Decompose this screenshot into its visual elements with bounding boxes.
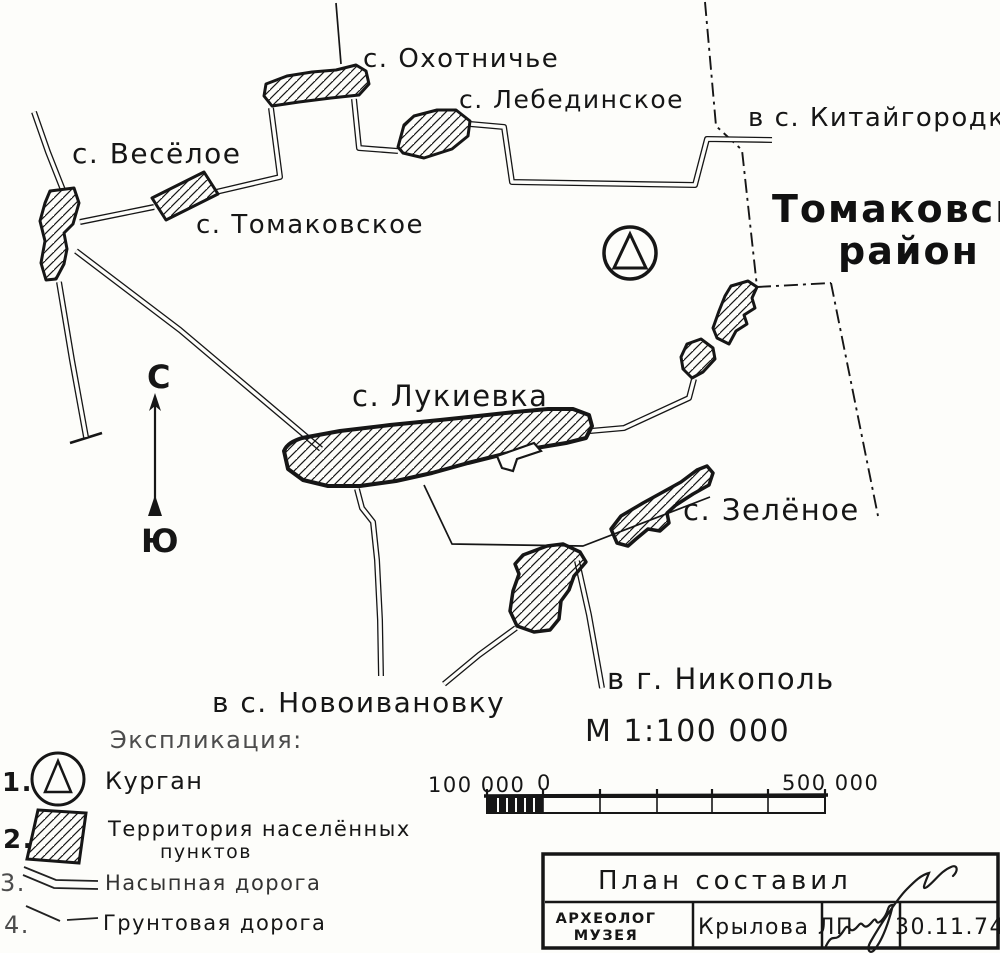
label-novoivanovka: в с. Новоивановку	[212, 686, 505, 719]
title-block: План составил АРХЕОЛОГ МУЗЕЯ Крылова ЛП …	[543, 854, 1000, 952]
label-scale-text: М 1:100 000	[585, 714, 790, 749]
label-tomakovskoye: с. Томаковское	[196, 210, 424, 240]
label-zelyonoye: с. Зелёное	[683, 493, 860, 527]
legend-label-1: Курган	[105, 767, 203, 795]
scale-zero-label: 0	[537, 771, 552, 795]
label-vesyoloye: с. Весёлое	[72, 137, 242, 170]
settlement-northeast-large	[713, 281, 757, 344]
title-block-name: Крылова ЛП	[698, 915, 854, 940]
label-region-line1: Томаковский	[772, 187, 1000, 231]
legend-label-2a: Территория населённых	[107, 817, 411, 841]
legend-item-dirt-road: 4. Грунтовая дорога	[4, 906, 326, 939]
title-block-role-1: АРХЕОЛОГ	[556, 911, 657, 927]
settlement-vesyoloye	[40, 188, 79, 280]
label-lukievka: с. Лукиевка	[352, 379, 548, 413]
scale-left-label: 100 000	[428, 773, 525, 797]
settlement-lebedinskoye	[398, 110, 470, 158]
label-kitaygorodka: в с. Китайгородку	[748, 103, 1000, 133]
compass-south-label: Ю	[141, 522, 180, 560]
label-nikopol: в г. Никополь	[607, 662, 835, 696]
settlement-northeast-small	[681, 339, 715, 378]
compass: С Ю	[141, 358, 180, 560]
title-block-date: 30.11.74	[895, 915, 1000, 940]
legend-label-4: Грунтовая дорога	[103, 911, 326, 935]
legend-num-1: 1.	[2, 768, 33, 798]
legend-item-embankment-road: 3. Насыпная дорога	[0, 867, 321, 897]
scale-bar: 100 000 0 500 000	[428, 771, 879, 813]
scale-right-label: 500 000	[782, 771, 879, 795]
label-okhotnichye: с. Охотничье	[363, 44, 559, 74]
legend: Экспликация: 1. Курган 2. Территория нас…	[0, 726, 411, 939]
legend-label-3: Насыпная дорога	[105, 871, 321, 895]
scanned-map-page: С Ю с. Охотничье с. Лебединское в с. Кит…	[0, 0, 1000, 953]
kurgan-legend-icon	[32, 753, 84, 805]
label-region-line2: район	[838, 229, 980, 273]
legend-num-3: 3.	[0, 869, 26, 897]
single-line-road-icon	[26, 906, 98, 921]
settlement-lukievka	[284, 409, 592, 486]
kurgan-symbol-icon	[604, 227, 656, 279]
legend-label-2b: пунктов	[160, 841, 252, 863]
place-labels: с. Охотничье с. Лебединское в с. Китайго…	[72, 44, 1000, 749]
label-lebedinskoye: с. Лебединское	[459, 85, 684, 114]
hatched-area-icon	[27, 810, 86, 863]
compass-north-label: С	[147, 358, 172, 396]
legend-num-4: 4.	[4, 911, 30, 939]
compass-fletch-icon	[148, 495, 162, 516]
settlement-near-nikopol	[510, 544, 586, 632]
title-block-title: План составил	[598, 866, 852, 896]
title-block-role-2: МУЗЕЯ	[574, 928, 638, 944]
dirt-road-north-stub	[336, 3, 341, 64]
legend-item-kurgan: 1. Курган	[2, 753, 203, 805]
legend-heading: Экспликация:	[110, 726, 303, 754]
double-line-road-icon	[23, 867, 98, 889]
scale-bar-dividers	[543, 797, 768, 813]
legend-item-territory: 2. Территория населённых пунктов	[3, 810, 411, 863]
